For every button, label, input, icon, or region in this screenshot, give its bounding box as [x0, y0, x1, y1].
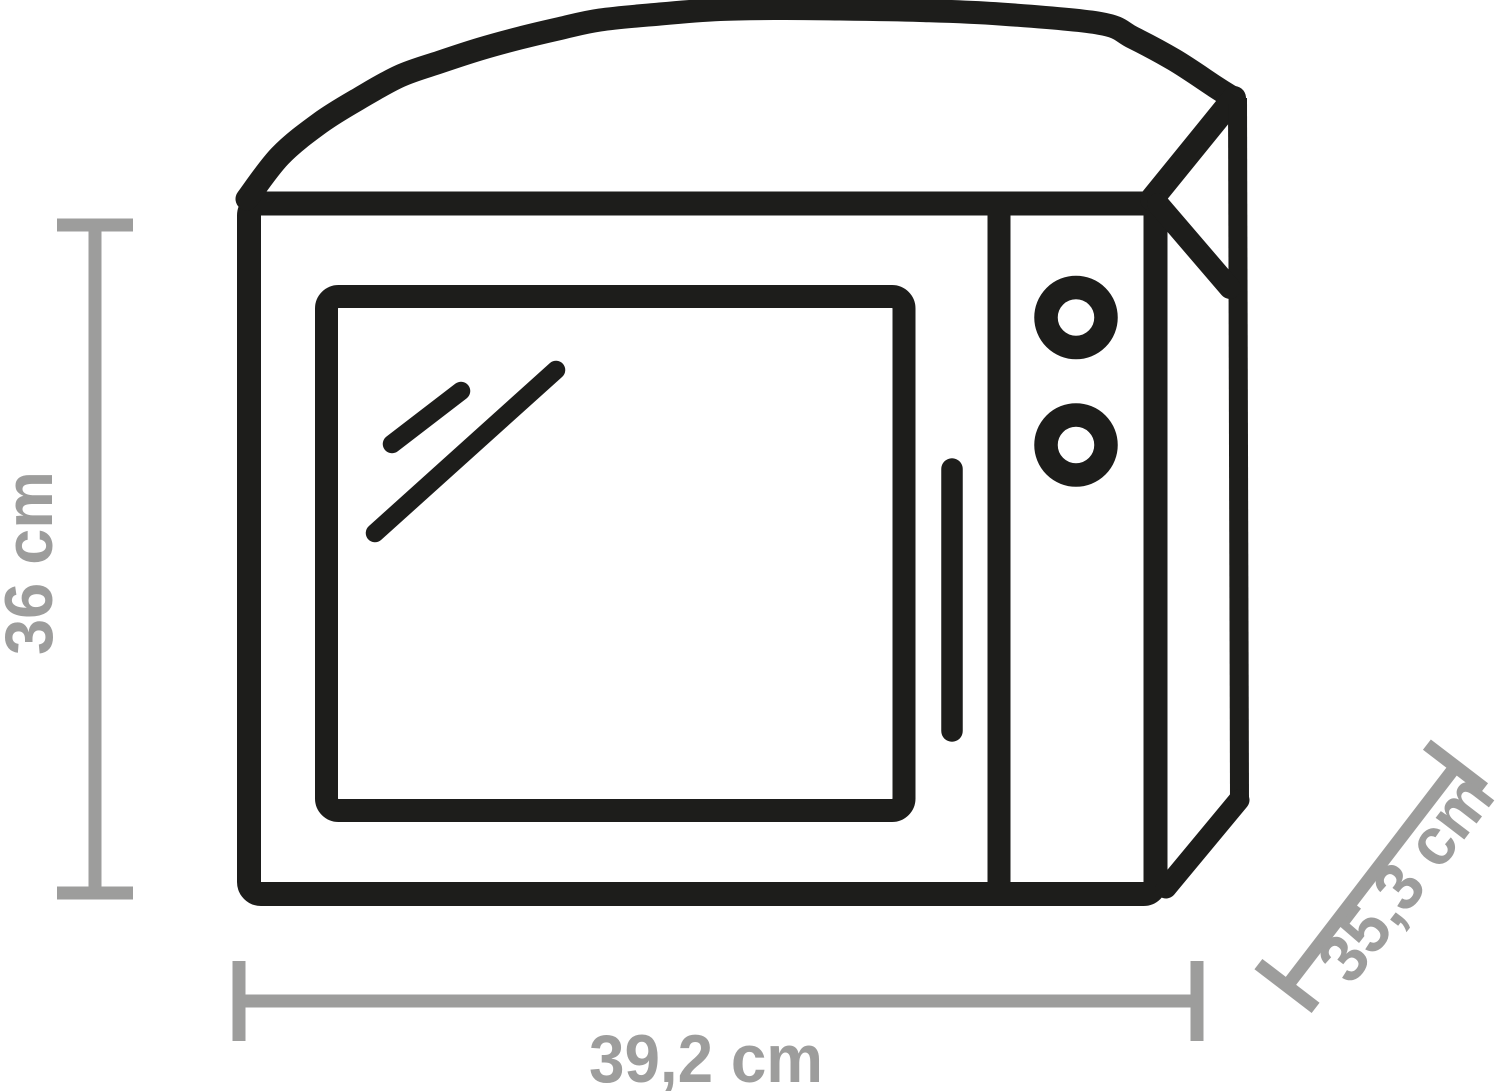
- svg-text:36 cm: 36 cm: [0, 471, 67, 655]
- svg-text:39,2 cm: 39,2 cm: [589, 1021, 823, 1091]
- svg-text:35,3 cm: 35,3 cm: [1303, 760, 1500, 996]
